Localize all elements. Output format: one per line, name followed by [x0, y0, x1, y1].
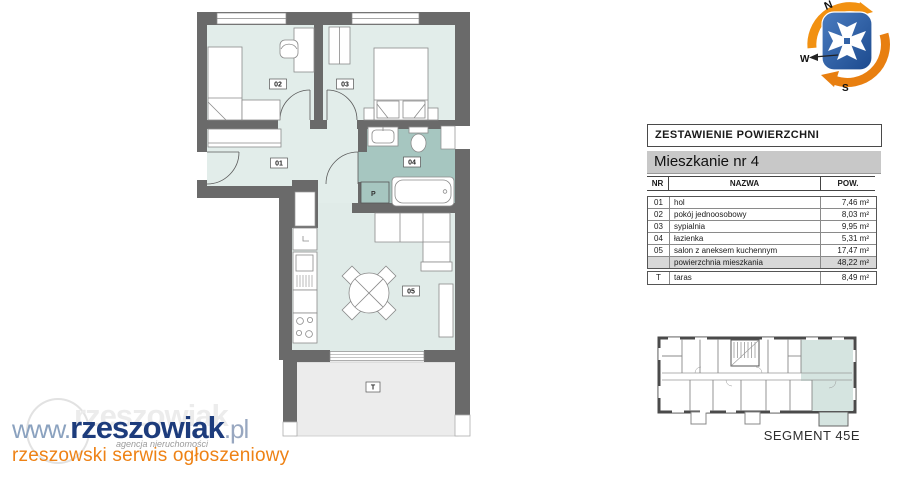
nightstand [364, 108, 374, 120]
label-room-03: 03 [341, 82, 349, 89]
compass-s-label: S [842, 83, 849, 92]
cabinet [242, 100, 280, 120]
col-header-nr: NR [647, 177, 668, 190]
col-header-pow: POW. [820, 177, 875, 190]
table-row: Ttaras8,49 m² [648, 272, 876, 284]
label-room-04: 04 [408, 160, 416, 167]
single-bed [208, 47, 242, 120]
sofa-armrest [421, 262, 452, 271]
compass-rose: N W S [798, 0, 898, 92]
label-terrace: T [371, 385, 376, 392]
kitchen-counter [293, 290, 317, 313]
panel-title: ZESTAWIENIE POWIERZCHNI [647, 124, 882, 147]
stove [293, 313, 317, 343]
table-row: 05salon z aneksem kuchennym17,47 m² [648, 244, 876, 256]
table-row: 03sypialnia9,95 m² [648, 220, 876, 232]
label-room-05: 05 [407, 289, 415, 296]
site-logo[interactable]: rzeszowiak www.rzeszowiak.pl agencja nie… [8, 392, 308, 478]
toilet-tank [409, 127, 428, 133]
col-header-nazwa: NAZWA [668, 177, 820, 190]
page: P 01 02 03 04 05 T [0, 0, 900, 481]
desk-chair [280, 40, 298, 58]
logo-tagline: rzeszowski serwis ogłoszeniowy [12, 445, 289, 467]
rooms-table: 01hol7,46 m² 02pokój jednoosobowy8,03 m²… [647, 196, 877, 269]
hall-wardrobe [208, 129, 281, 147]
label-room-02: 02 [274, 82, 282, 89]
table-row: 01hol7,46 m² [648, 197, 876, 208]
table-row: 02pokój jednoosobowy8,03 m² [648, 208, 876, 220]
washing-machine-label: P [371, 191, 376, 198]
table-row: 04łazienka5,31 m² [648, 232, 876, 244]
pillow [377, 101, 399, 118]
pillow [403, 101, 425, 118]
toilet [411, 134, 426, 152]
logo-www: www. [12, 414, 70, 444]
kitchen-cabinet [293, 228, 317, 250]
apartment-title: Mieszkanie nr 4 [647, 151, 881, 174]
label-room-01: 01 [275, 161, 283, 168]
compass-shield [822, 12, 872, 70]
tv-cabinet [439, 284, 453, 337]
table-header-row: NR NAZWA POW. [647, 176, 875, 191]
floor-plan: P 01 02 03 04 05 T [170, 0, 480, 450]
terrace-floor [295, 362, 458, 436]
logo-tld: .pl [224, 414, 248, 444]
table-row-total: powierzchnia mieszkania48,22 m² [648, 256, 876, 268]
building-segment-plan [655, 330, 865, 430]
segment-label: SEGMENT 45E [748, 428, 860, 443]
terrace-table: Ttaras8,49 m² [647, 271, 877, 285]
nightstand [428, 108, 438, 120]
balcony [691, 412, 706, 424]
terrace-sliding-window [330, 352, 424, 361]
balcony [745, 412, 760, 424]
highlighted-balcony [819, 412, 848, 426]
compass-w-label: W [800, 54, 810, 65]
